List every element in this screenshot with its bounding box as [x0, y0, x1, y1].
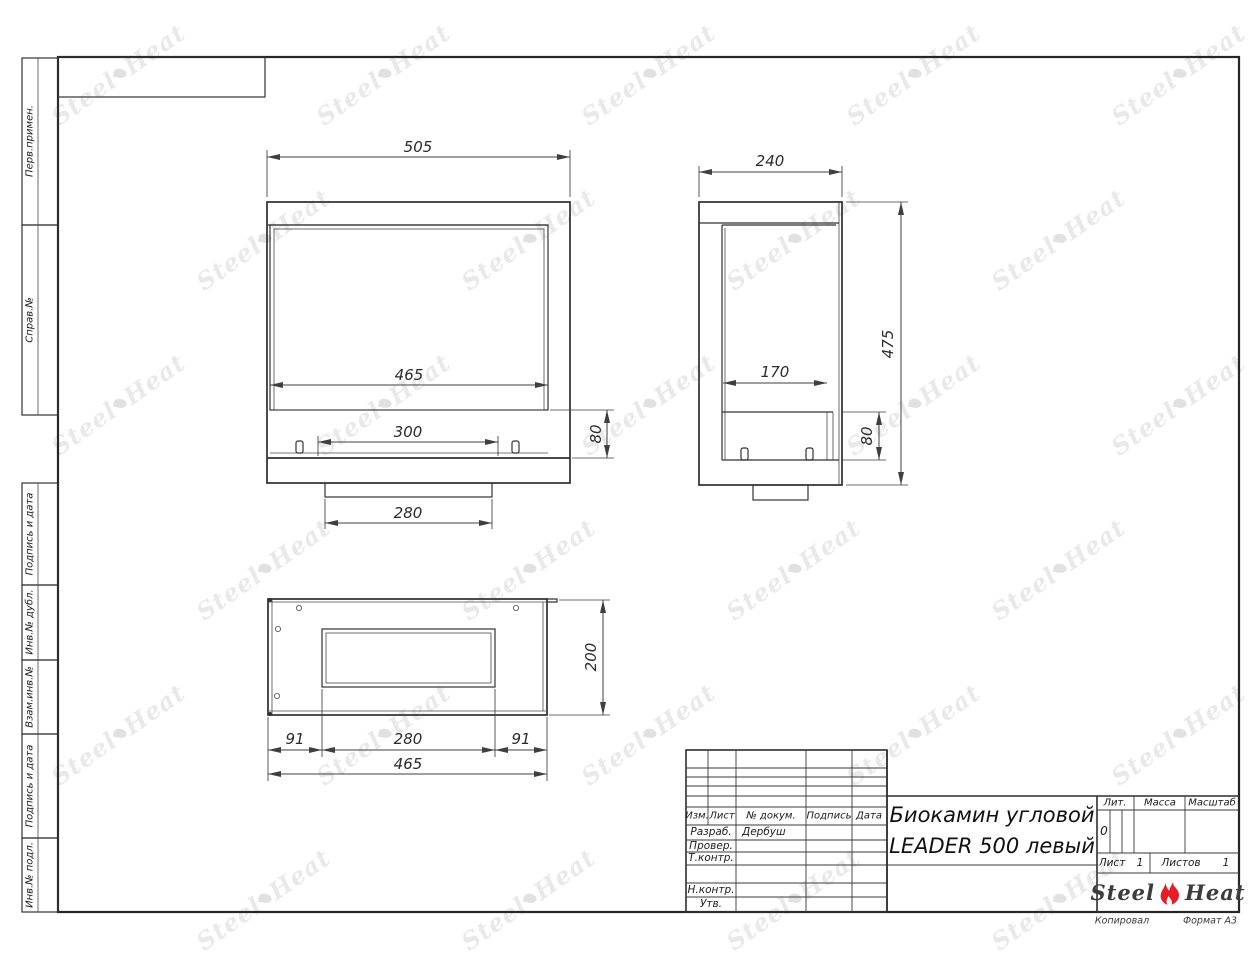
side-dim-inner-depth: 170: [761, 363, 790, 381]
side-dim-shelf-height: 80: [858, 426, 876, 445]
tb-header-izm: Изм.: [685, 811, 709, 822]
front-dim-glass-width: 465: [395, 366, 424, 384]
top-dims: 200 91 280 91 465: [268, 600, 610, 781]
margin-label-inv-podl: Инв.№ подл.: [25, 842, 36, 908]
footer-copied-label: Копировал: [1095, 916, 1149, 927]
flame-icon: [1159, 880, 1181, 906]
margin-label-sprav-no: Справ.№: [25, 297, 36, 342]
tb-sheets-value: 1: [1223, 857, 1230, 869]
sheet-frame: [58, 57, 1239, 912]
tb-row-razrab: Разраб.: [690, 826, 731, 838]
margin-label-podpis-data-2: Подпись и дата: [25, 745, 36, 828]
tb-razrab-name: Дербуш: [742, 826, 786, 838]
front-dim-base-width: 280: [394, 504, 423, 522]
side-view: 240 475 170 80: [699, 152, 908, 500]
top-view: 200 91 280 91 465: [268, 598, 610, 781]
tb-row-tkontr: Т.контр.: [688, 852, 734, 864]
tb-row-prover: Провер.: [689, 840, 733, 852]
top-dim-right-offset: 91: [511, 730, 530, 748]
footer-format-label: Формат А3: [1183, 916, 1237, 927]
tb-sheet-label: Лист: [1099, 857, 1126, 869]
drawing-title-line1: Биокамин угловой: [890, 800, 1095, 830]
tb-sheets-label: Листов: [1161, 857, 1200, 869]
tb-header-list: Лист: [709, 811, 734, 822]
logo-steel-text: Steel: [1090, 880, 1155, 905]
drawing-title-line2: LEADER 500 левый: [889, 831, 1095, 861]
tb-lit-label: Лит.: [1103, 798, 1126, 809]
margin-label-podpis-data-1: Подпись и дата: [25, 493, 36, 576]
margin-label-vzam-inv: Взам.инв.№: [25, 666, 36, 728]
front-dims: 505 465 300 80 280: [267, 138, 614, 529]
drawing-title: Биокамин угловой LEADER 500 левый: [887, 796, 1097, 865]
company-logo: Steel Heat: [1097, 873, 1239, 912]
tb-header-data: Дата: [856, 811, 882, 822]
side-dim-overall-depth: 240: [756, 152, 785, 170]
tb-massa-label: Масса: [1144, 798, 1176, 809]
tb-header-podpis: Подпись: [807, 811, 852, 822]
front-dim-shelf-height: 80: [587, 424, 605, 443]
front-dim-burner-width: 300: [394, 423, 423, 441]
tb-row-nkontr: Н.контр.: [688, 884, 735, 896]
margin-label-perv-primen: Перв.примен.: [25, 105, 36, 177]
front-view: 505 465 300 80 280: [267, 138, 614, 529]
front-dim-overall-width: 505: [404, 138, 433, 156]
tb-row-utv: Утв.: [700, 898, 722, 910]
top-dim-body-width: 465: [394, 755, 423, 773]
tb-lit-value: 0: [1100, 824, 1108, 838]
side-dim-overall-height: 475: [879, 330, 897, 359]
top-dim-body-depth: 200: [582, 643, 600, 672]
top-dim-left-offset: 91: [285, 730, 304, 748]
tb-masshtab-label: Масштаб: [1188, 798, 1236, 809]
margin-label-inv-dubl: Инв.№ дубл.: [25, 589, 36, 654]
tb-sheet-value: 1: [1137, 857, 1144, 869]
logo-heat-text: Heat: [1185, 880, 1246, 905]
top-dim-opening-width: 280: [394, 730, 423, 748]
tb-header-doc: № докум.: [746, 811, 795, 822]
